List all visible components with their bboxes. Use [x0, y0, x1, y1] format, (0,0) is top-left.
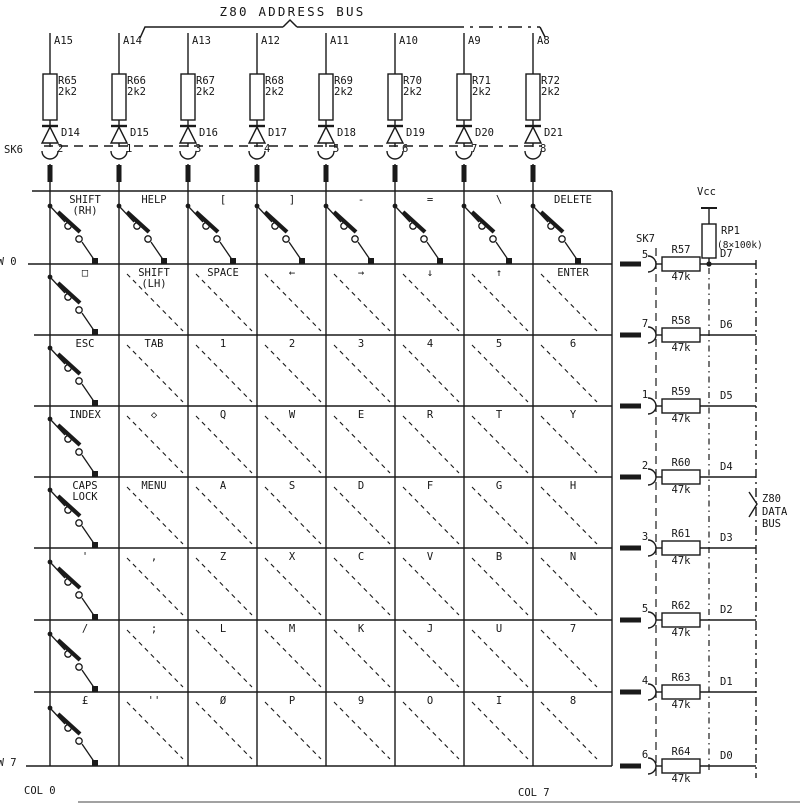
- sk7-pin-number: 4: [638, 676, 652, 687]
- key-label: C: [327, 552, 395, 563]
- key-label: J: [396, 624, 464, 635]
- key-label: →: [327, 268, 395, 279]
- dashed-switch: [472, 487, 528, 544]
- key-label: '': [120, 696, 188, 707]
- resistor-label: R58: [662, 316, 700, 327]
- rp1-pullup-pack: [701, 208, 717, 770]
- dashed-switch: [334, 558, 390, 615]
- dashed-switch: [265, 345, 321, 402]
- diode-label: D21: [544, 128, 563, 139]
- key-label: B: [465, 552, 533, 563]
- address-line-label: A13: [192, 36, 211, 47]
- diode-label: D18: [337, 128, 356, 139]
- dashed-switch: [127, 558, 183, 615]
- key-label: A: [189, 481, 257, 492]
- dashed-switch: [541, 558, 597, 615]
- address-line-label: A15: [54, 36, 73, 47]
- key-label: \: [465, 195, 533, 206]
- key-label: 4: [396, 339, 464, 350]
- key-label: SHIFT (LH): [120, 268, 188, 290]
- key-label: TAB: [120, 339, 188, 350]
- key-label: T: [465, 410, 533, 421]
- sk6-connector-label: SK6: [4, 145, 23, 156]
- address-bus-title: Z80 ADDRESS BUS: [180, 6, 405, 17]
- key-label: X: [258, 552, 326, 563]
- dashed-switch: [196, 274, 252, 331]
- address-line-label: A8: [537, 36, 550, 47]
- key-switch: [186, 204, 236, 264]
- dashed-switch: [265, 416, 321, 473]
- dashed-switch: [334, 274, 390, 331]
- diode-label: D17: [268, 128, 287, 139]
- key-label: G: [465, 481, 533, 492]
- key-label: 6: [534, 339, 612, 350]
- key-label: /: [51, 624, 119, 635]
- diode-label: D14: [61, 128, 80, 139]
- data-line-label: D5: [720, 391, 733, 402]
- key-label: M: [258, 624, 326, 635]
- dashed-switch: [472, 702, 528, 759]
- resistor-value: 47k: [662, 556, 700, 567]
- key-label: CAPS LOCK: [51, 481, 119, 503]
- dashed-switch: [265, 487, 321, 544]
- sk7-pin-number: 1: [638, 390, 652, 401]
- key-label: Q: [189, 410, 257, 421]
- dashed-switch: [541, 416, 597, 473]
- resistor-value: 47k: [662, 485, 700, 496]
- key-label: -: [327, 195, 395, 206]
- keyboard-matrix-schematic: [0, 0, 800, 808]
- key-label: □: [51, 268, 119, 279]
- vcc-label: Vcc: [697, 187, 716, 198]
- resistor-value: 47k: [662, 343, 700, 354]
- key-label: 9: [327, 696, 395, 707]
- key-label: R: [396, 410, 464, 421]
- sk6-pin-number: 5: [333, 144, 339, 155]
- sk6-pin-number: 2: [57, 144, 63, 155]
- key-switch: [48, 417, 98, 477]
- dashed-switch: [196, 416, 252, 473]
- sk6-pin-number: 8: [540, 144, 546, 155]
- diode-label: D20: [475, 128, 494, 139]
- key-label: D: [327, 481, 395, 492]
- resistor-value: 2k2: [541, 87, 560, 98]
- dashed-switch: [403, 630, 459, 687]
- key-label: ←: [258, 268, 326, 279]
- dashed-switch: [403, 274, 459, 331]
- sk6-pin-number: 1: [126, 144, 132, 155]
- dashed-switch: [127, 345, 183, 402]
- row0-label: ROW 0: [0, 257, 17, 268]
- sk7-pin-number: 2: [638, 461, 652, 472]
- key-label: MENU: [120, 481, 188, 492]
- sk6-pin-number: 4: [264, 144, 270, 155]
- dashed-switch: [541, 345, 597, 402]
- dashed-switch: [541, 702, 597, 759]
- key-switch: [324, 204, 374, 264]
- diode-label: D15: [130, 128, 149, 139]
- resistor-value: 2k2: [127, 87, 146, 98]
- key-label: H: [534, 481, 612, 492]
- resistor-value: 47k: [662, 272, 700, 283]
- diode-label: D19: [406, 128, 425, 139]
- dashed-switch: [196, 558, 252, 615]
- key-label: L: [189, 624, 257, 635]
- key-switch: [48, 346, 98, 406]
- resistor-value: 2k2: [58, 87, 77, 98]
- dashed-switch: [196, 702, 252, 759]
- sk6-pin-number: 7: [471, 144, 477, 155]
- key-switch: [393, 204, 443, 264]
- data-bus-label: Z80 DATA BUS: [762, 493, 787, 531]
- dashed-switch: [334, 487, 390, 544]
- dashed-switch: [334, 345, 390, 402]
- resistor-value: 47k: [662, 700, 700, 711]
- key-label: INDEX: [51, 410, 119, 421]
- key-label: =: [396, 195, 464, 206]
- address-line-label: A11: [330, 36, 349, 47]
- key-label: ENTER: [534, 268, 612, 279]
- dashed-switch: [403, 558, 459, 615]
- key-switch: [462, 204, 512, 264]
- sk7-connector-label: SK7: [636, 234, 655, 245]
- key-label: O: [396, 696, 464, 707]
- sk7-pin-number: 7: [638, 319, 652, 330]
- key-switch: [48, 632, 98, 692]
- dashed-switch: [472, 630, 528, 687]
- dashed-switch: [127, 702, 183, 759]
- key-label: N: [534, 552, 612, 563]
- resistor-label: R62: [662, 601, 700, 612]
- key-label: 8: [534, 696, 612, 707]
- resistor-label: R61: [662, 529, 700, 540]
- key-label: P: [258, 696, 326, 707]
- address-line-label: A12: [261, 36, 280, 47]
- key-label: W: [258, 410, 326, 421]
- sk7-pin-number: 5: [638, 250, 652, 261]
- dashed-switch: [127, 630, 183, 687]
- data-line-label: D4: [720, 462, 733, 473]
- dashed-switch: [334, 702, 390, 759]
- rp1-label: RP1: [721, 226, 740, 237]
- resistor-value: 47k: [662, 414, 700, 425]
- row7-label: ROW 7: [0, 758, 17, 769]
- dashed-switch: [265, 630, 321, 687]
- dashed-switch: [265, 702, 321, 759]
- sk7-pin-number: 6: [638, 750, 652, 761]
- key-label: 7: [534, 624, 612, 635]
- key-switch: [48, 706, 98, 766]
- key-label: 3: [327, 339, 395, 350]
- diode-label: D16: [199, 128, 218, 139]
- dashed-switch: [127, 487, 183, 544]
- data-line-label: D6: [720, 320, 733, 331]
- key-label: 1: [189, 339, 257, 350]
- key-label: ,: [120, 552, 188, 563]
- key-label: ↑: [465, 268, 533, 279]
- dashed-switch: [403, 702, 459, 759]
- resistor-value: 2k2: [403, 87, 422, 98]
- key-label: HELP: [120, 195, 188, 206]
- address-line-label: A9: [468, 36, 481, 47]
- resistor-label: R64: [662, 747, 700, 758]
- address-line-label: A10: [399, 36, 418, 47]
- key-label: SHIFT (RH): [51, 195, 119, 217]
- key-label: ]: [258, 195, 326, 206]
- dashed-switch: [541, 630, 597, 687]
- data-line-label: D3: [720, 533, 733, 544]
- key-label: I: [465, 696, 533, 707]
- sk6-pin-number: 6: [402, 144, 408, 155]
- key-label: Ø: [189, 696, 257, 707]
- resistor-value: 2k2: [196, 87, 215, 98]
- key-label: V: [396, 552, 464, 563]
- key-switch: [48, 275, 98, 335]
- dashed-switch: [541, 487, 597, 544]
- key-switch: [255, 204, 305, 264]
- dashed-switch: [403, 487, 459, 544]
- key-label: 5: [465, 339, 533, 350]
- dashed-switch: [472, 558, 528, 615]
- sk7-pin-number: 3: [638, 532, 652, 543]
- dashed-switch: [127, 416, 183, 473]
- address-line-label: A14: [123, 36, 142, 47]
- resistor-value: 2k2: [265, 87, 284, 98]
- key-label: DELETE: [534, 195, 612, 206]
- resistor-label: R57: [662, 245, 700, 256]
- data-line-label: D0: [720, 751, 733, 762]
- resistor-label: R63: [662, 673, 700, 684]
- key-switch: [48, 560, 98, 620]
- resistor-value: 2k2: [472, 87, 491, 98]
- key-label: Z: [189, 552, 257, 563]
- key-label: ': [51, 552, 119, 563]
- dashed-switch: [472, 345, 528, 402]
- col0-label: COL 0: [24, 786, 56, 797]
- key-label: F: [396, 481, 464, 492]
- dashed-switch: [403, 345, 459, 402]
- dashed-switch: [334, 630, 390, 687]
- resistor-label: R60: [662, 458, 700, 469]
- dashed-switch: [196, 630, 252, 687]
- resistor-value: 2k2: [334, 87, 353, 98]
- key-label: ◇: [120, 410, 188, 421]
- data-line-label: D1: [720, 677, 733, 688]
- key-label: ;: [120, 624, 188, 635]
- address-columns-hardware: [41, 33, 542, 766]
- resistor-label: R59: [662, 387, 700, 398]
- key-label: [: [189, 195, 257, 206]
- key-label: 2: [258, 339, 326, 350]
- data-line-label: D2: [720, 605, 733, 616]
- dashed-switch: [265, 274, 321, 331]
- sk7-pin-number: 5: [638, 604, 652, 615]
- dashed-switch: [403, 416, 459, 473]
- key-label: ESC: [51, 339, 119, 350]
- dashed-switch: [196, 487, 252, 544]
- dashed-switch: [334, 416, 390, 473]
- key-label: SPACE: [189, 268, 257, 279]
- resistor-value: 47k: [662, 774, 700, 785]
- key-switch: [117, 204, 167, 264]
- resistor-value: 47k: [662, 628, 700, 639]
- key-label: U: [465, 624, 533, 635]
- row-exit-connectors: [620, 256, 756, 774]
- data-line-label: D7: [720, 249, 733, 260]
- dashed-switch: [541, 274, 597, 331]
- dashed-switch: [472, 416, 528, 473]
- dashed-switch: [472, 274, 528, 331]
- col7-label: COL 7: [518, 788, 550, 799]
- key-label: K: [327, 624, 395, 635]
- key-label: S: [258, 481, 326, 492]
- dashed-switch: [196, 345, 252, 402]
- key-label: Y: [534, 410, 612, 421]
- key-label: E: [327, 410, 395, 421]
- key-label: ↓: [396, 268, 464, 279]
- key-label: £: [51, 696, 119, 707]
- dashed-switch: [265, 558, 321, 615]
- key-switch: [531, 204, 581, 264]
- sk6-pin-number: 3: [195, 144, 201, 155]
